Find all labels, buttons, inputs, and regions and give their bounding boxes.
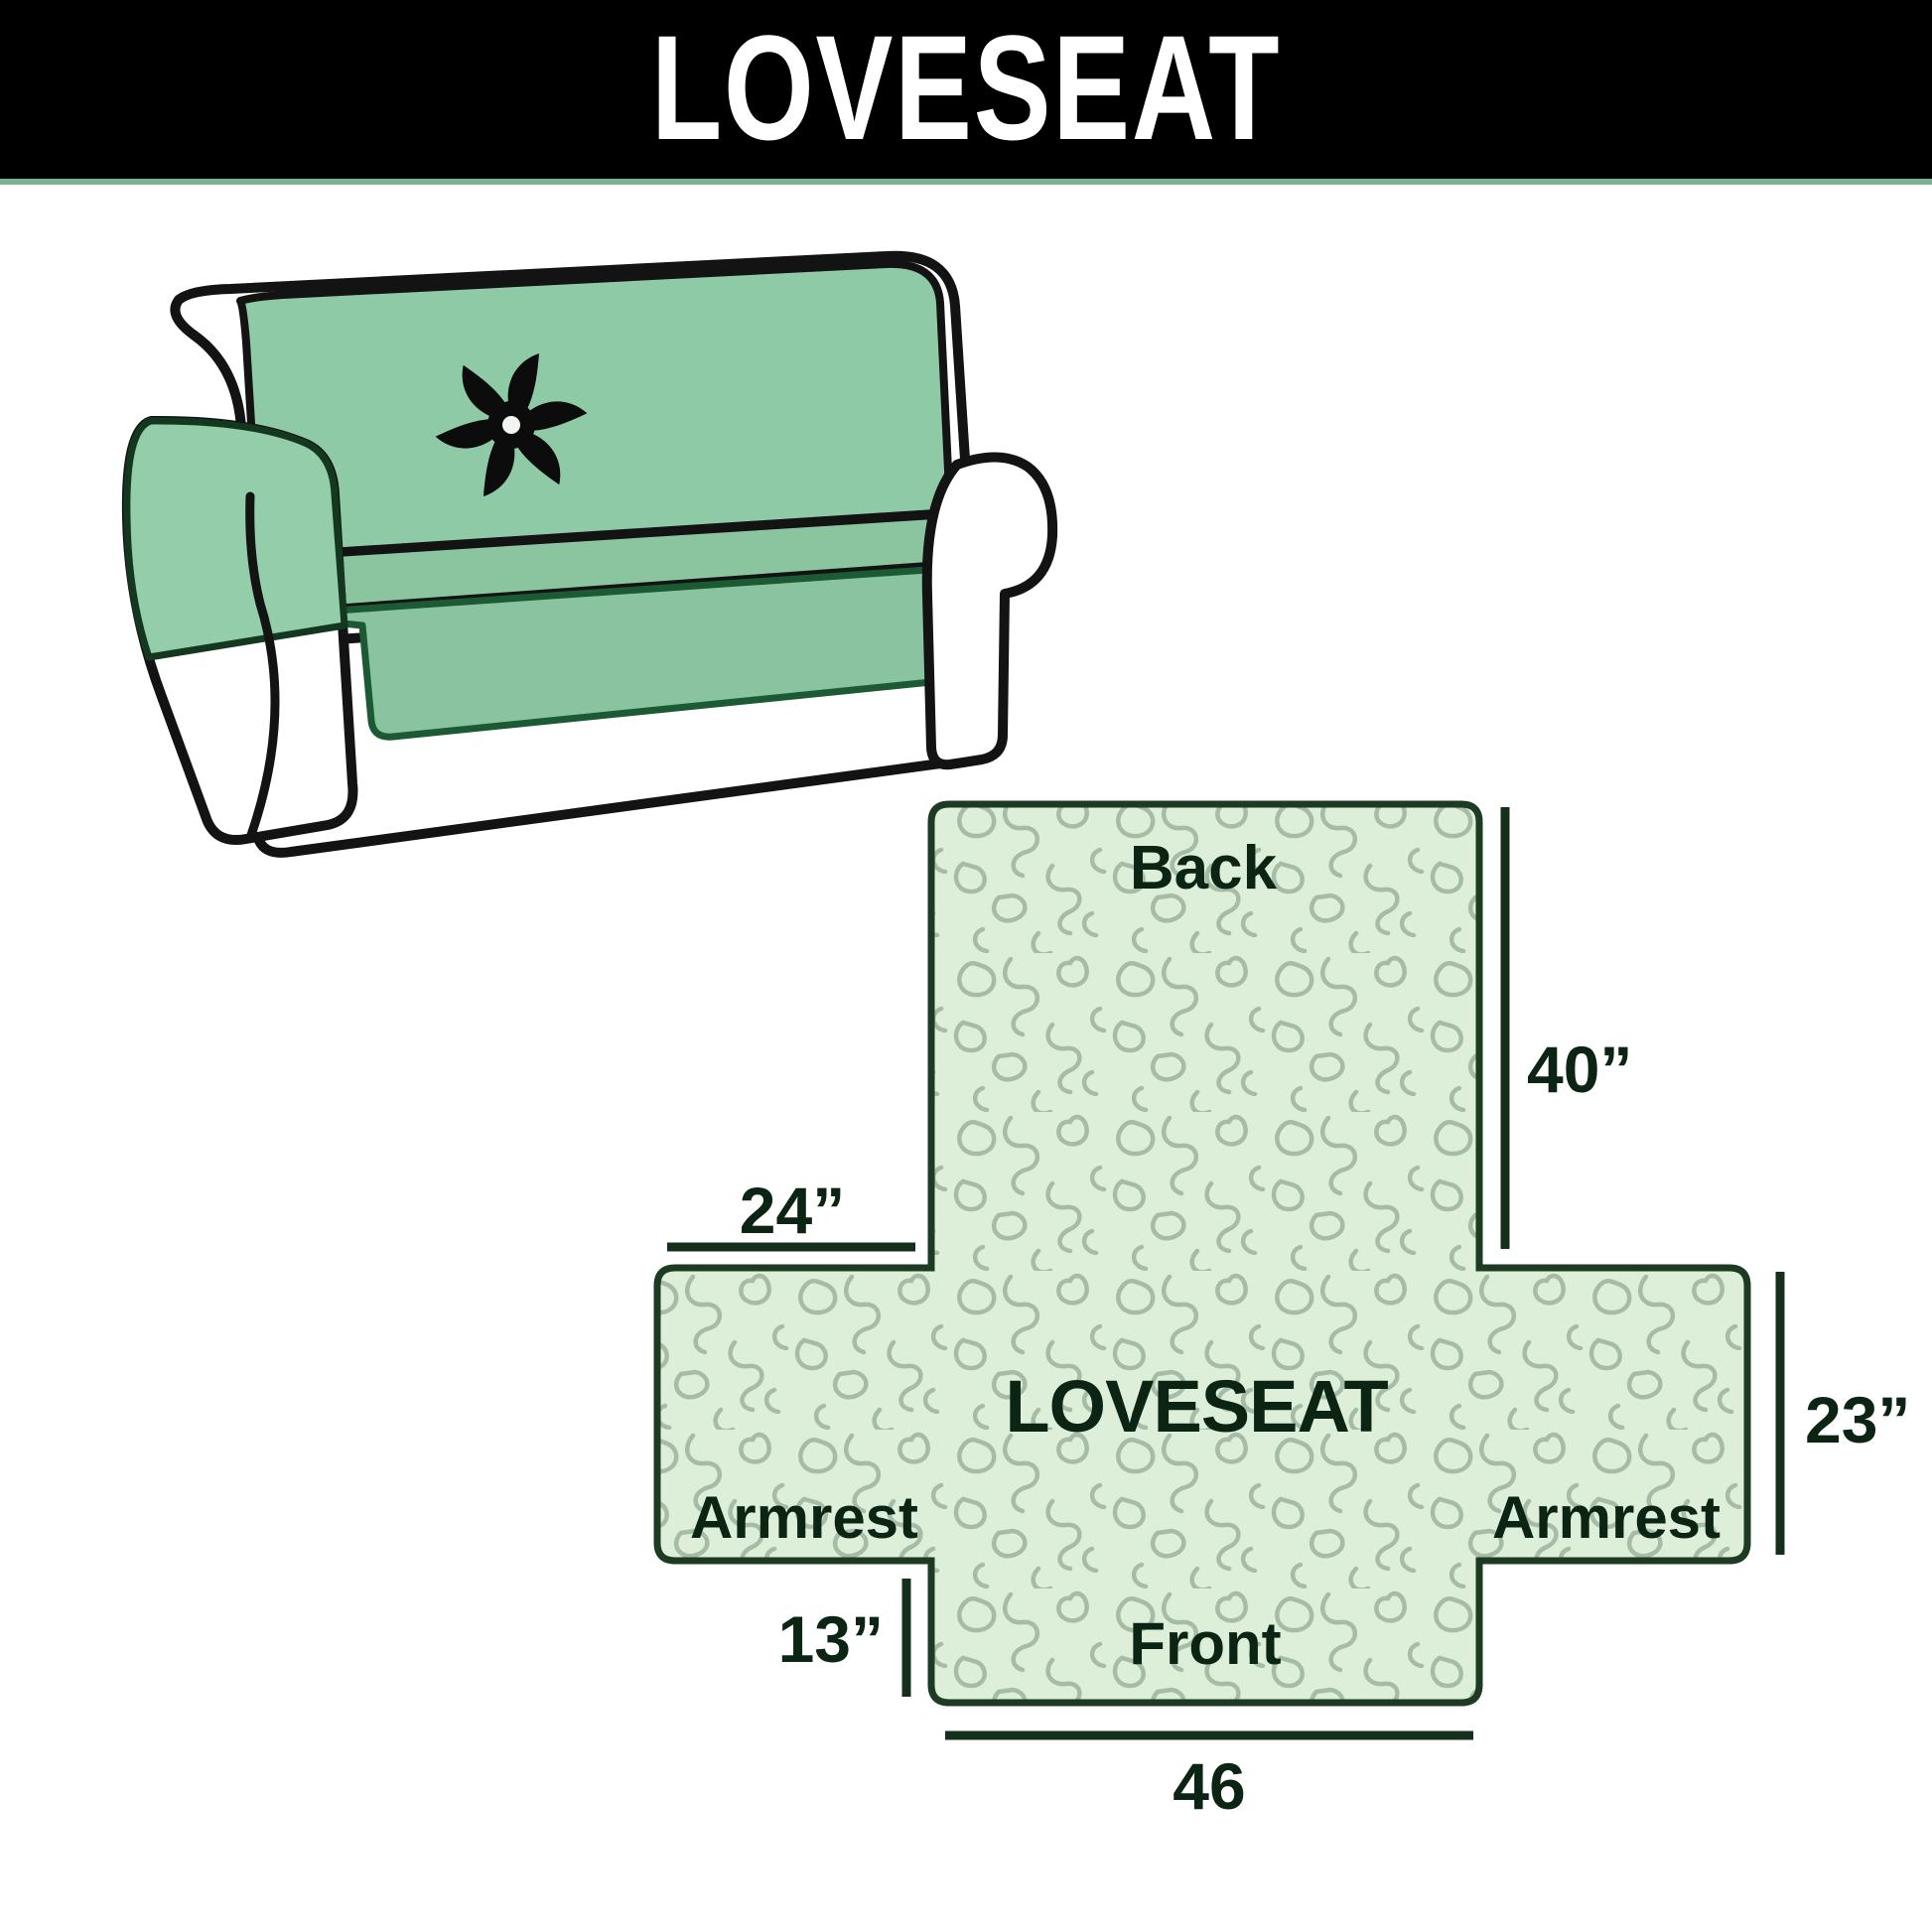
dim-label-front-width: 46 — [1173, 1749, 1245, 1823]
sofa-illustration — [127, 256, 1052, 853]
dim-label-back-height: 40” — [1527, 1033, 1632, 1106]
title-bar-accent-line — [0, 179, 1932, 185]
dim-label-armrest-top-width: 24” — [740, 1173, 845, 1247]
dim-label-front-height: 13” — [778, 1602, 884, 1676]
scene: LOVESEAT — [0, 0, 1932, 1932]
pinwheel-center-dot — [502, 416, 520, 434]
product-label-center: LOVESEAT — [1005, 1365, 1388, 1448]
sofa-right-arm — [927, 457, 1052, 764]
section-label-back: Back — [1130, 834, 1278, 902]
section-label-front: Front — [1129, 1610, 1281, 1677]
section-label-armrest-right: Armrest — [1492, 1484, 1721, 1551]
title-bar: LOVESEAT — [0, 0, 1932, 185]
section-label-armrest-left: Armrest — [690, 1484, 918, 1551]
cover-diagram: Back LOVESEAT Armrest Armrest Front 40” … — [657, 804, 1910, 1823]
sofa-back-cover — [240, 264, 950, 554]
page-title: LOVESEAT — [651, 4, 1281, 171]
sofa-left-arm-cover — [127, 421, 345, 657]
cover-outline-shape — [657, 804, 1747, 1703]
dim-label-armrest-height: 23” — [1805, 1383, 1910, 1456]
